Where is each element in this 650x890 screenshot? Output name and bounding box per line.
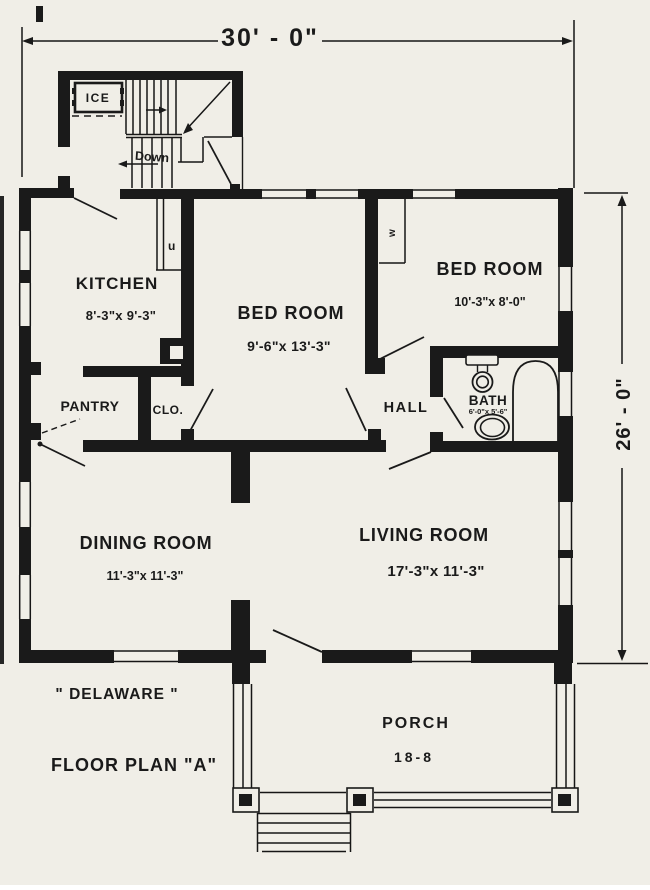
svg-text:11'-3"x 11'-3": 11'-3"x 11'-3" — [107, 569, 184, 583]
svg-text:BATH: BATH — [469, 393, 508, 408]
svg-text:ICE: ICE — [86, 91, 111, 105]
svg-text:u: u — [168, 239, 175, 253]
svg-text:FLOOR PLAN "A": FLOOR PLAN "A" — [51, 755, 217, 775]
svg-text:Down: Down — [135, 149, 170, 165]
svg-text:10'-3"x 8'-0": 10'-3"x 8'-0" — [454, 295, 525, 309]
svg-text:18-8: 18-8 — [394, 749, 434, 765]
svg-text:KITCHEN: KITCHEN — [76, 274, 159, 293]
svg-text:6'-0"x 5'-6": 6'-0"x 5'-6" — [469, 407, 508, 416]
svg-text:BED ROOM: BED ROOM — [437, 259, 544, 279]
svg-text:" DELAWARE ": " DELAWARE " — [55, 686, 178, 703]
svg-text:PANTRY: PANTRY — [61, 398, 120, 414]
svg-text:LIVING ROOM: LIVING ROOM — [359, 525, 489, 545]
svg-text:8'-3"x 9'-3": 8'-3"x 9'-3" — [86, 308, 157, 323]
svg-text:30' - 0": 30' - 0" — [221, 24, 319, 52]
svg-text:9'-6"x 13'-3": 9'-6"x 13'-3" — [247, 338, 331, 354]
svg-text:26' - 0": 26' - 0" — [613, 377, 635, 450]
svg-text:CLO.: CLO. — [153, 403, 184, 417]
svg-text:DINING ROOM: DINING ROOM — [80, 533, 213, 553]
svg-text:BED ROOM: BED ROOM — [238, 303, 345, 323]
svg-text:PORCH: PORCH — [382, 715, 450, 732]
svg-text:HALL: HALL — [384, 400, 429, 416]
svg-text:w: w — [387, 229, 398, 238]
svg-text:17'-3"x 11'-3": 17'-3"x 11'-3" — [387, 563, 484, 580]
